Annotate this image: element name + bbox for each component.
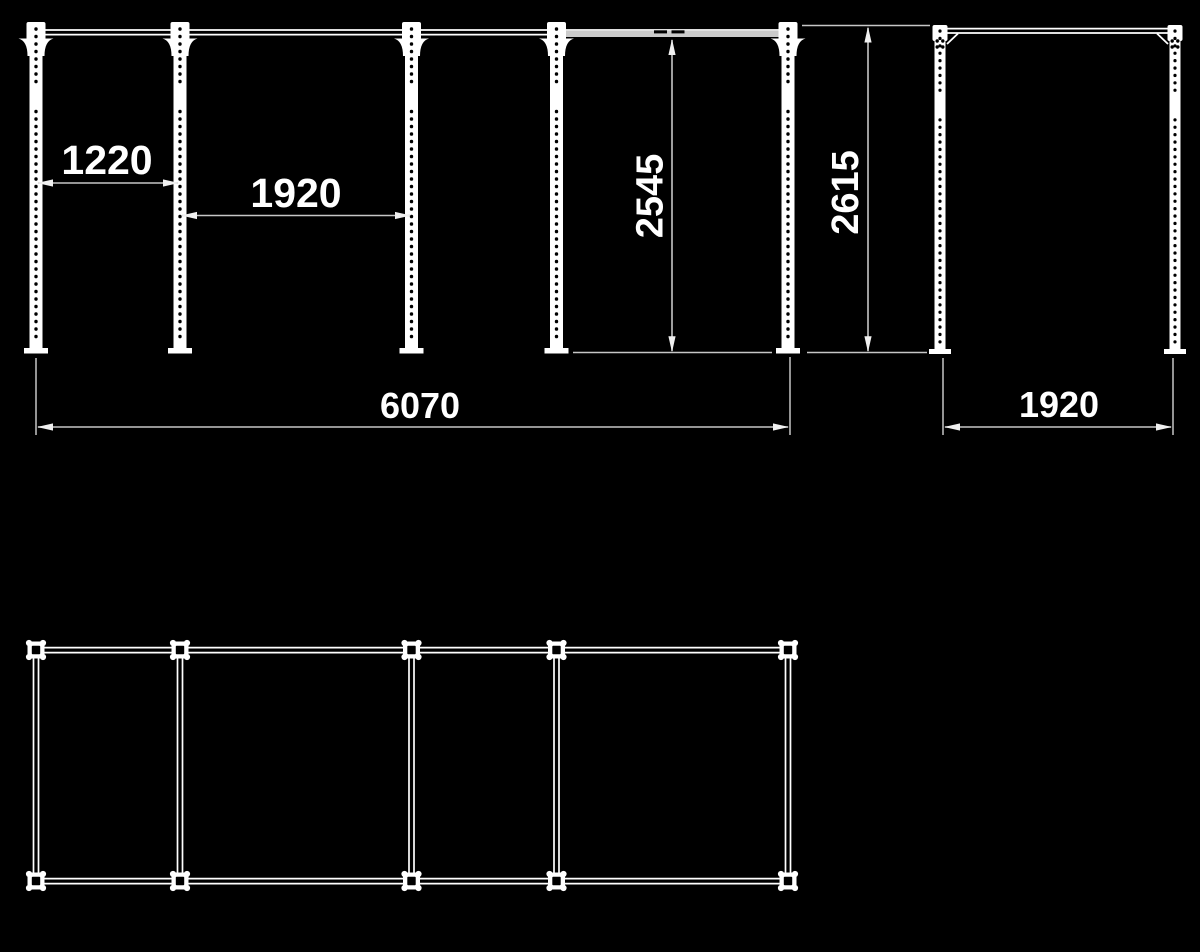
front-post-4	[539, 22, 574, 354]
plan-node	[401, 640, 421, 660]
plan-node	[778, 871, 798, 891]
plan-node	[778, 640, 798, 660]
plan-cross-member-4	[554, 650, 559, 881]
arrowhead-right	[1156, 423, 1172, 430]
plan-view	[26, 640, 798, 891]
plan-cross-member-3	[409, 650, 414, 881]
dimension-overall-height: 2615	[802, 26, 930, 353]
front-post-1	[19, 22, 54, 354]
arrowhead-left	[37, 423, 53, 430]
arrowhead-right	[773, 423, 789, 430]
plan-cross-member-5	[786, 650, 791, 881]
side-top-beam	[946, 29, 1169, 44]
dimension-bar-height: 2545	[573, 39, 772, 353]
rig-dimension-drawing: 1220 1920 2545 2615 6070	[0, 0, 1200, 952]
dimension-overall-width: 6070	[36, 357, 790, 435]
dimension-label-bay2: 1920	[250, 170, 341, 216]
dimension-label-bar-height: 2545	[630, 154, 672, 239]
front-post-5	[771, 22, 806, 354]
cad-drawing-canvas: 1220 1920 2545 2615 6070	[0, 0, 1200, 952]
plan-node	[26, 871, 46, 891]
front-elevation-view	[19, 22, 806, 354]
front-post-2	[163, 22, 198, 354]
plan-node	[26, 640, 46, 660]
arrowhead-up	[668, 39, 675, 55]
dimension-bay2: 1920	[181, 170, 411, 219]
dimension-label-overall-width: 6070	[380, 385, 460, 426]
plan-node	[546, 871, 566, 891]
plan-node	[170, 640, 190, 660]
dimension-label-bay1: 1220	[61, 137, 152, 183]
plan-node	[401, 871, 421, 891]
dimension-label-overall-height: 2615	[825, 150, 867, 235]
side-elevation-view	[929, 25, 1186, 354]
arrowhead-down	[864, 336, 871, 352]
arrowhead-down	[668, 336, 675, 352]
plan-node	[170, 871, 190, 891]
plan-node	[546, 640, 566, 660]
dimension-depth: 1920	[943, 358, 1173, 435]
side-post-1	[929, 25, 951, 354]
pullup-bar	[563, 30, 782, 37]
arrowhead-left	[944, 423, 960, 430]
front-post-3	[394, 22, 429, 354]
plan-cross-member-1	[34, 650, 39, 881]
dimension-label-depth: 1920	[1019, 384, 1099, 425]
arrowhead-up	[864, 27, 871, 43]
side-post-2	[1164, 25, 1186, 354]
dimension-bay1: 1220	[37, 137, 179, 187]
plan-cross-member-2	[178, 650, 183, 881]
